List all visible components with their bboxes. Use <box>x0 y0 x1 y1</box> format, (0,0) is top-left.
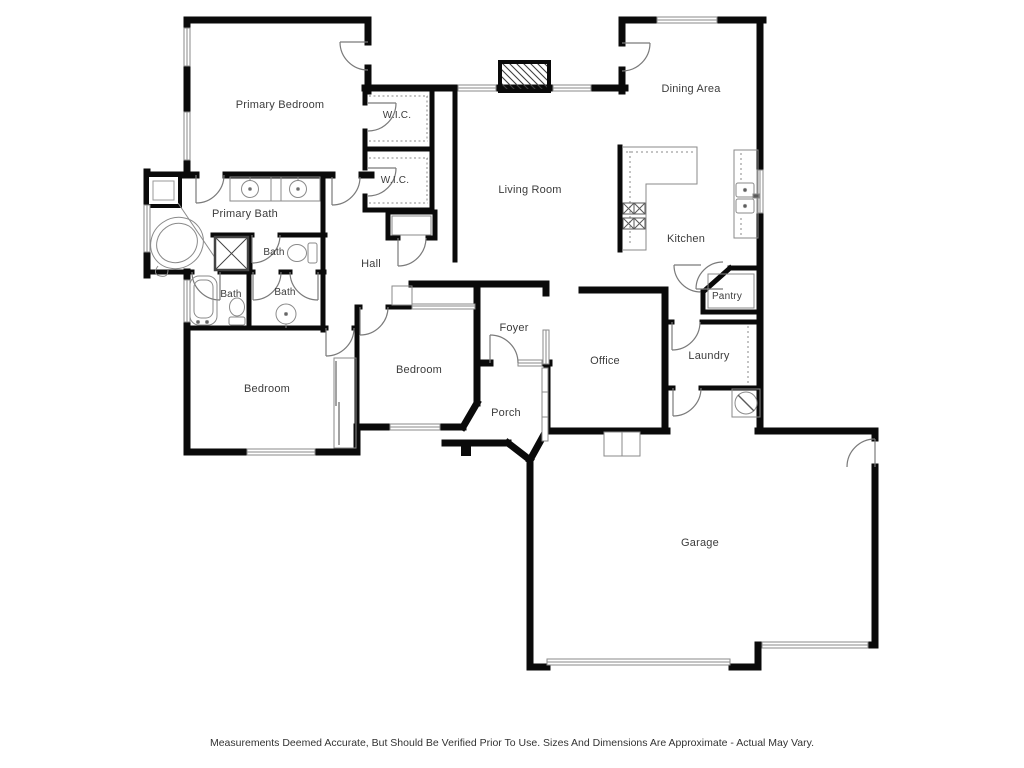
wall-top-center <box>365 20 763 91</box>
room-label-wic-lower: W.I.C. <box>381 175 409 186</box>
room-label-hall: Hall <box>361 258 381 270</box>
bedroom-middle-closet <box>392 286 412 305</box>
room-label-garage: Garage <box>681 537 719 549</box>
room-label-office: Office <box>590 355 620 367</box>
window-primary-bath <box>144 205 150 252</box>
room-label-bedroom-left: Bedroom <box>244 383 290 395</box>
door-dining-exterior <box>622 43 650 71</box>
door-laundry-garage <box>673 388 701 416</box>
door-front-entry <box>490 335 518 363</box>
floor-plan-svg: Primary Bedroom W.I.C. W.I.C. Dining Are… <box>0 0 1024 768</box>
garden-tub-icon <box>141 203 222 279</box>
disclaimer-text: Measurements Deemed Accurate, But Should… <box>210 737 814 749</box>
window-foyer-sidelight <box>518 360 542 366</box>
room-label-bath-tub: Bath <box>220 289 241 300</box>
stove-icon <box>623 203 645 229</box>
door-primary-bedroom-hall <box>332 177 360 205</box>
room-label-foyer: Foyer <box>499 322 528 334</box>
room-label-kitchen: Kitchen <box>667 233 705 245</box>
window-foyer-office <box>543 330 549 364</box>
vanity-sink-icon-1 <box>242 177 259 198</box>
window-bath-tub <box>184 280 190 322</box>
wall-garage <box>445 431 875 667</box>
vanity-sink-icon-2 <box>290 177 307 198</box>
room-label-primary-bedroom: Primary Bedroom <box>236 99 325 111</box>
room-label-bedroom-middle: Bedroom <box>396 364 442 376</box>
water-heater-icon <box>732 389 760 417</box>
room-label-primary-bath: Primary Bath <box>212 208 278 220</box>
door-garage-exterior <box>847 439 875 467</box>
door-laundry <box>672 322 700 350</box>
kitchen-sink-icon <box>736 183 759 213</box>
porch-post <box>461 446 471 456</box>
pedestal-sink-icon <box>276 304 296 328</box>
garage-door-left <box>547 659 730 665</box>
door-primary-bedroom-patio <box>340 42 368 70</box>
door-pantry-fan-1 <box>674 265 701 292</box>
primary-bath-vanity <box>230 177 320 201</box>
wall-wic-block <box>365 88 432 210</box>
toilet-icon-2 <box>229 298 245 325</box>
fireplace <box>500 62 549 91</box>
room-label-living-room: Living Room <box>498 184 561 196</box>
window-living-2 <box>553 85 591 91</box>
primary-bath-closet <box>147 175 180 206</box>
wall-pantry <box>703 268 760 312</box>
floor-plan-page: Primary Bedroom W.I.C. W.I.C. Dining Are… <box>0 0 1024 768</box>
window-bedroom-left <box>247 449 315 455</box>
door-primary-bath <box>196 175 224 203</box>
kitchen-sink-counter <box>734 150 759 238</box>
wall-primary-bedroom <box>147 20 371 275</box>
room-label-dining-area: Dining Area <box>661 83 721 95</box>
window-bedroom-middle-top <box>412 304 475 309</box>
room-label-bath-sink: Bath <box>274 287 295 298</box>
garage-door-right <box>762 642 868 648</box>
hall-closet-shelf <box>392 216 431 235</box>
toilet-icon-1 <box>288 243 318 263</box>
window-living-1 <box>458 85 496 91</box>
room-label-porch: Porch <box>491 407 521 419</box>
room-label-wic-upper: W.I.C. <box>383 110 411 121</box>
room-label-pantry: Pantry <box>712 291 742 302</box>
garage-step <box>604 432 640 456</box>
window-primary-bedroom-2 <box>184 112 190 160</box>
exterior-walls <box>147 20 875 667</box>
window-dining <box>657 17 717 23</box>
window-primary-bedroom-1 <box>184 28 190 66</box>
door-bedroom-left <box>326 328 354 356</box>
door-hall-closet <box>398 238 426 266</box>
room-label-laundry: Laundry <box>688 350 729 362</box>
porch-railing <box>542 368 548 441</box>
shower-icon <box>215 237 248 270</box>
window-bedroom-middle <box>390 424 440 430</box>
door-bedroom-middle <box>360 307 388 335</box>
room-label-bath-water-closet: Bath <box>263 247 284 258</box>
bedroom-left-closet <box>334 358 356 448</box>
